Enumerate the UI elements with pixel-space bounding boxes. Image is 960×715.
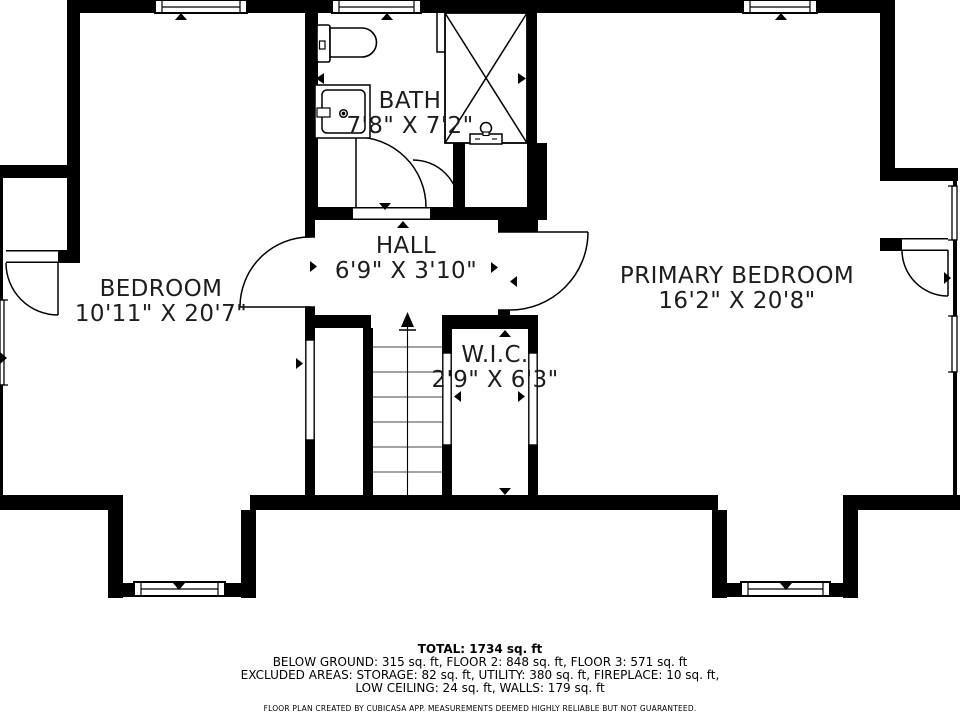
room-label-wic: W.I.C. 2'9" X 6'3" — [431, 343, 558, 393]
closet-door — [6, 250, 58, 315]
window-marker — [499, 488, 511, 495]
door-marker — [491, 262, 498, 273]
room-label-hall: HALL 6'9" X 3'10" — [335, 234, 477, 284]
wall-segment — [421, 0, 743, 13]
wall-segment — [880, 10, 895, 170]
wall-segment — [241, 510, 256, 598]
wall-segment — [430, 207, 537, 220]
wall-segment — [442, 315, 538, 329]
room-name: PRIMARY BEDROOM — [620, 264, 854, 289]
wall-segment — [247, 0, 332, 13]
low-window — [948, 316, 957, 372]
wall-segment — [0, 495, 123, 510]
excluded-areas-cont: LOW CEILING: 24 sq. ft, WALLS: 179 sq. f… — [0, 682, 960, 695]
wall-segment — [305, 220, 315, 237]
room-dims: 10'11" X 20'7" — [75, 302, 247, 327]
wall-segment — [363, 328, 373, 498]
area-summary: TOTAL: 1734 sq. ft BELOW GROUND: 315 sq.… — [0, 643, 960, 713]
wall-segment — [498, 220, 538, 232]
primary-bedroom-door — [498, 232, 588, 310]
wall-segment — [305, 207, 353, 220]
room-label-primary-bedroom: PRIMARY BEDROOM 16'2" X 20'8" — [620, 264, 854, 314]
wall-segment — [305, 315, 371, 328]
wall-segment — [843, 495, 960, 510]
wall-segment — [442, 445, 452, 498]
wall-segment — [528, 445, 538, 498]
wall-segment — [880, 168, 958, 181]
wall-segment — [843, 510, 858, 598]
wall-segment — [67, 0, 155, 13]
room-dims: 2'9" X 6'3" — [431, 368, 558, 393]
wall-segment — [527, 13, 537, 143]
door-marker — [296, 358, 303, 369]
bedroom-door — [240, 237, 315, 307]
low-window — [0, 300, 8, 385]
vanity-nook-door-arc — [413, 160, 459, 206]
door-marker — [510, 276, 517, 287]
wall-segment — [453, 143, 465, 220]
low-window — [948, 186, 957, 240]
wall-segment — [0, 165, 80, 178]
room-dims: 6'9" X 3'10" — [335, 259, 477, 284]
wall-segment — [880, 238, 902, 251]
room-label-bath: BATH 7'8" X 7'2" — [346, 89, 473, 139]
wall-segment — [67, 0, 80, 172]
room-name: BATH — [346, 89, 473, 114]
floor-plan: BATH 7'8" X 7'2" HALL 6'9" X 3'10" BEDRO… — [0, 0, 960, 715]
window-marker — [775, 13, 787, 20]
wall-segment — [56, 250, 80, 263]
window — [155, 0, 247, 13]
room-dims: 7'8" X 7'2" — [346, 114, 473, 139]
window-marker — [499, 330, 511, 337]
stairs-up-arrow — [401, 312, 414, 327]
toilet-icon — [317, 25, 377, 62]
window — [332, 0, 421, 13]
room-name: BEDROOM — [75, 277, 247, 302]
room-label-bedroom: BEDROOM 10'11" X 20'7" — [75, 277, 247, 327]
window — [743, 0, 817, 13]
door-marker — [397, 221, 409, 228]
opening — [305, 340, 315, 440]
room-name: HALL — [335, 234, 477, 259]
staircase — [373, 312, 442, 495]
wall-segment — [527, 143, 547, 220]
wall-segment — [305, 440, 315, 497]
room-name: W.I.C. — [431, 343, 558, 368]
window-marker — [381, 13, 393, 20]
disclaimer: FLOOR PLAN CREATED BY CUBICASA APP. MEAS… — [0, 704, 960, 713]
primary-closet-door — [902, 238, 948, 296]
wall-segment — [250, 495, 718, 510]
window-marker — [175, 13, 187, 20]
room-dims: 16'2" X 20'8" — [620, 289, 854, 314]
